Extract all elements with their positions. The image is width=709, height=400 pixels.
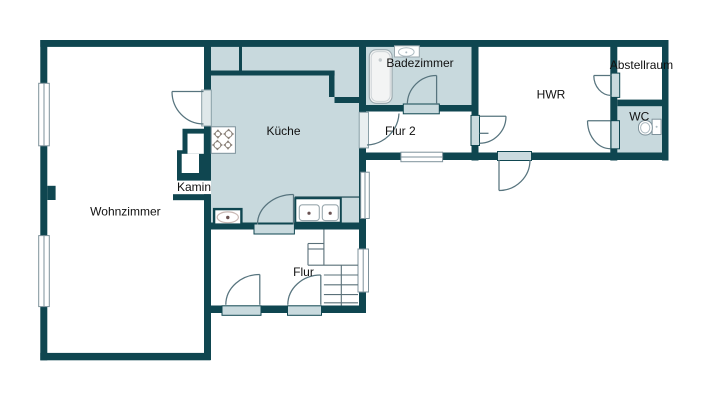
svg-text:Wohnzimmer: Wohnzimmer xyxy=(90,205,160,219)
svg-text:Kamin: Kamin xyxy=(177,180,211,194)
svg-text:Abstellraum: Abstellraum xyxy=(610,58,673,72)
svg-text:Badezimmer: Badezimmer xyxy=(386,56,453,70)
svg-text:HWR: HWR xyxy=(537,88,566,102)
svg-text:Flur: Flur xyxy=(293,265,314,279)
svg-text:Küche: Küche xyxy=(266,124,300,138)
svg-text:Flur 2: Flur 2 xyxy=(385,124,416,138)
svg-text:WC: WC xyxy=(629,110,649,124)
